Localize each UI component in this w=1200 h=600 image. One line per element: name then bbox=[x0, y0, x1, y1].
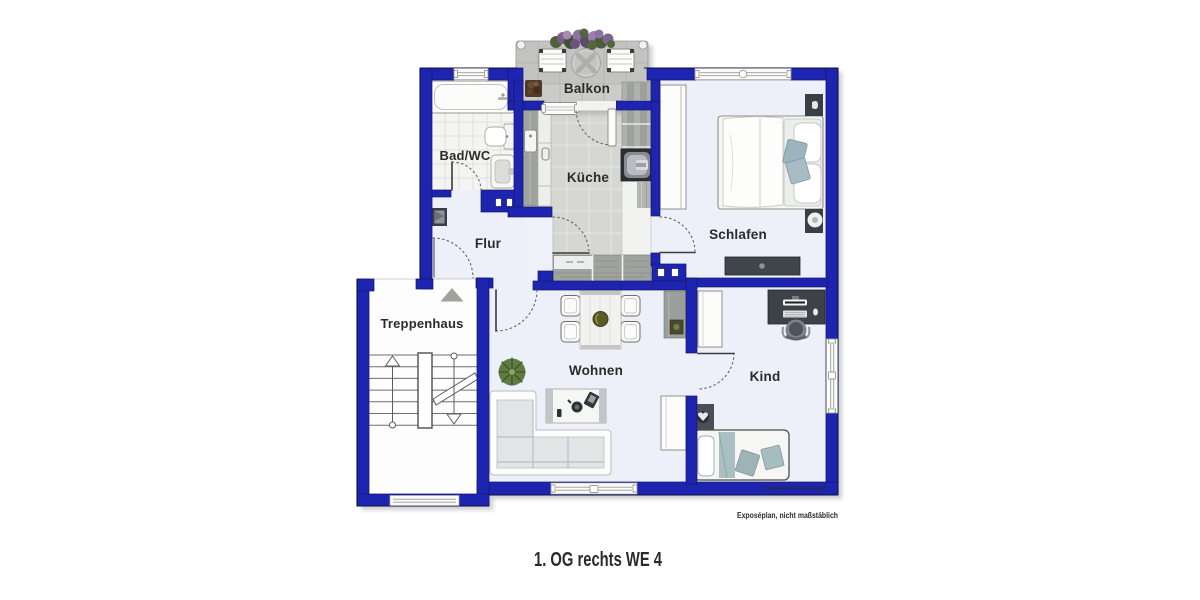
svg-text:1. OG rechts WE 4: 1. OG rechts WE 4 bbox=[534, 549, 663, 571]
svg-text:Küche: Küche bbox=[567, 170, 610, 185]
svg-text:Treppenhaus: Treppenhaus bbox=[380, 316, 463, 331]
svg-text:Kind: Kind bbox=[750, 369, 781, 384]
svg-text:Bad/WC: Bad/WC bbox=[439, 148, 490, 163]
svg-text:Balkon: Balkon bbox=[564, 81, 610, 96]
svg-text:Flur: Flur bbox=[475, 236, 502, 251]
svg-text:Schlafen: Schlafen bbox=[709, 227, 767, 242]
svg-text:Wohnen: Wohnen bbox=[569, 363, 623, 378]
svg-text:Exposéplan, nicht maßstäblich: Exposéplan, nicht maßstäblich bbox=[737, 510, 838, 520]
svg-text:IllustrationEimmoGrafik: IllustrationEimmoGrafik bbox=[765, 486, 828, 492]
